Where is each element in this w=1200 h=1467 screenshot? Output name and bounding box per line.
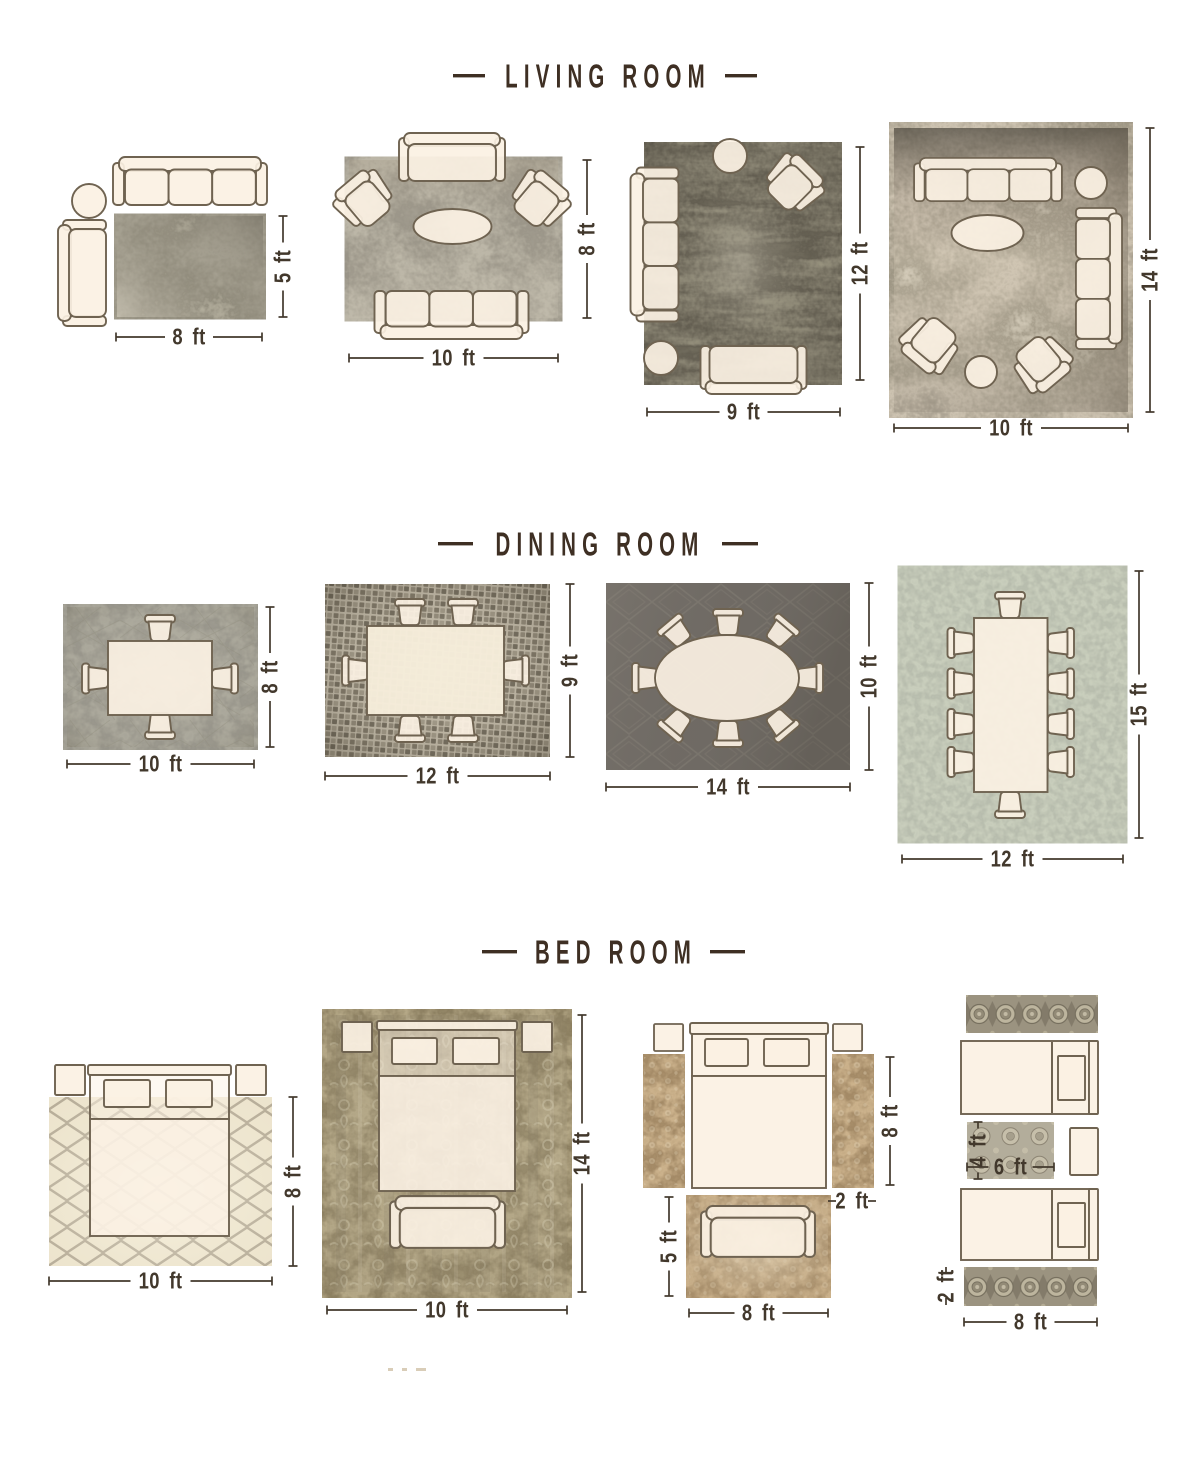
svg-text:12 ft: 12 ft (848, 242, 873, 286)
svg-text:8 ft: 8 ft (742, 1301, 775, 1326)
svg-text:15 ft: 15 ft (1127, 683, 1152, 727)
svg-text:10 ft: 10 ft (425, 1298, 469, 1323)
svg-text:4 ft: 4 ft (966, 1134, 991, 1167)
svg-text:2 ft: 2 ft (934, 1269, 959, 1302)
svg-text:14 ft: 14 ft (1138, 248, 1163, 292)
svg-text:10 ft: 10 ft (139, 752, 183, 777)
svg-text:8 ft: 8 ft (878, 1104, 903, 1137)
svg-text:BED ROOM: BED ROOM (535, 933, 697, 970)
svg-text:8 ft: 8 ft (172, 325, 205, 350)
svg-text:2 ft: 2 ft (835, 1189, 868, 1214)
svg-text:9 ft: 9 ft (727, 400, 760, 425)
svg-text:10 ft: 10 ft (989, 416, 1033, 441)
svg-text:10 ft: 10 ft (432, 346, 476, 371)
svg-text:10 ft: 10 ft (857, 655, 882, 699)
svg-text:8 ft: 8 ft (1014, 1310, 1047, 1335)
svg-text:14 ft: 14 ft (570, 1132, 595, 1176)
svg-text:12 ft: 12 ft (991, 847, 1035, 872)
svg-text:6 ft: 6 ft (994, 1155, 1027, 1180)
svg-text:14 ft: 14 ft (706, 775, 750, 800)
svg-text:8 ft: 8 ft (258, 660, 283, 693)
svg-text:12 ft: 12 ft (416, 764, 460, 789)
svg-text:5 ft: 5 ft (271, 250, 296, 283)
svg-text:10 ft: 10 ft (139, 1269, 183, 1294)
svg-text:8 ft: 8 ft (575, 222, 600, 255)
svg-text:LIVING ROOM: LIVING ROOM (505, 57, 711, 94)
svg-text:9 ft: 9 ft (558, 654, 583, 687)
svg-text:DINING ROOM: DINING ROOM (495, 525, 704, 562)
svg-text:5 ft: 5 ft (657, 1230, 682, 1263)
svg-text:8 ft: 8 ft (281, 1165, 306, 1198)
